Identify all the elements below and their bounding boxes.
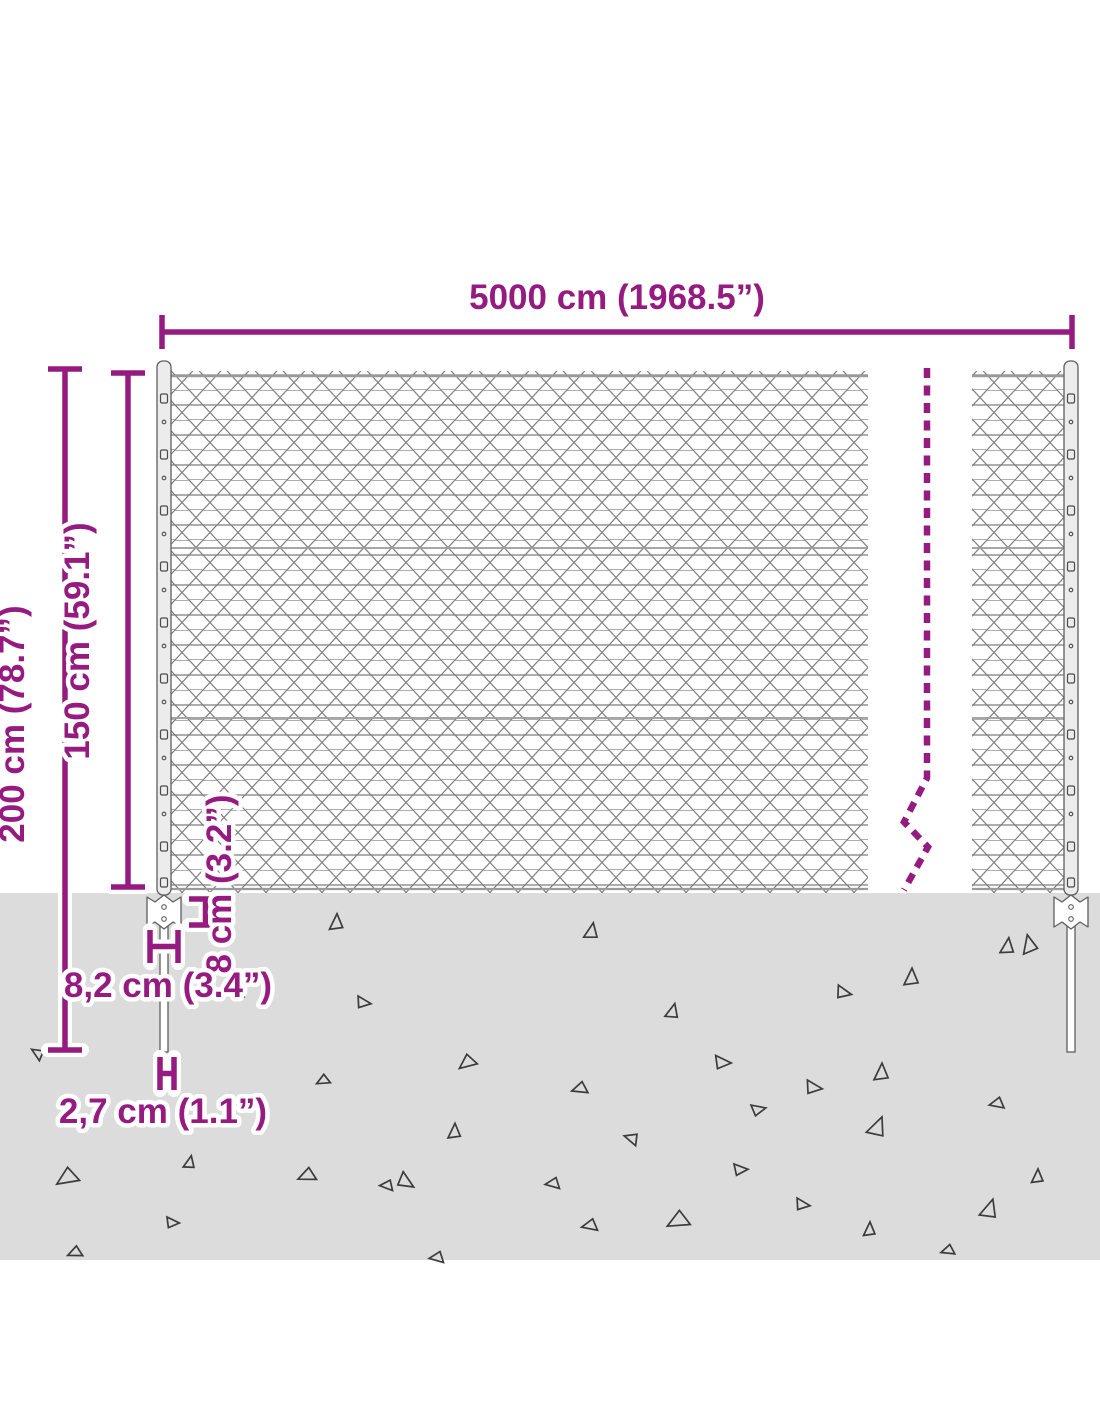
label-mesh-height: 150 cm (59.1”) [58, 522, 97, 759]
label-anchor-plate-height: 8 cm (3.2”) [200, 795, 239, 974]
label-spike-diameter: 2,7 cm (1.1”) [59, 1092, 267, 1131]
label-total-height: 200 cm (78.7”) [0, 605, 32, 842]
break-line [904, 368, 928, 890]
left-post [157, 361, 171, 895]
fence-mesh-main-panel [171, 371, 868, 893]
anchor-spike [1067, 924, 1075, 1052]
fence-dimension-diagram: 5000 cm (1968.5”) 200 cm (78.7”) 150 cm … [0, 0, 1100, 1422]
anchor-plate [1054, 895, 1088, 929]
label-anchor-plate-width: 8,2 cm (3.4”) [64, 966, 272, 1005]
right-post [1064, 361, 1078, 895]
label-total-width: 5000 cm (1968.5”) [469, 278, 765, 317]
dim-line-mesh-height [111, 373, 145, 887]
fence-mesh-right-panel [972, 371, 1065, 893]
dim-line-total-width [162, 315, 1072, 349]
